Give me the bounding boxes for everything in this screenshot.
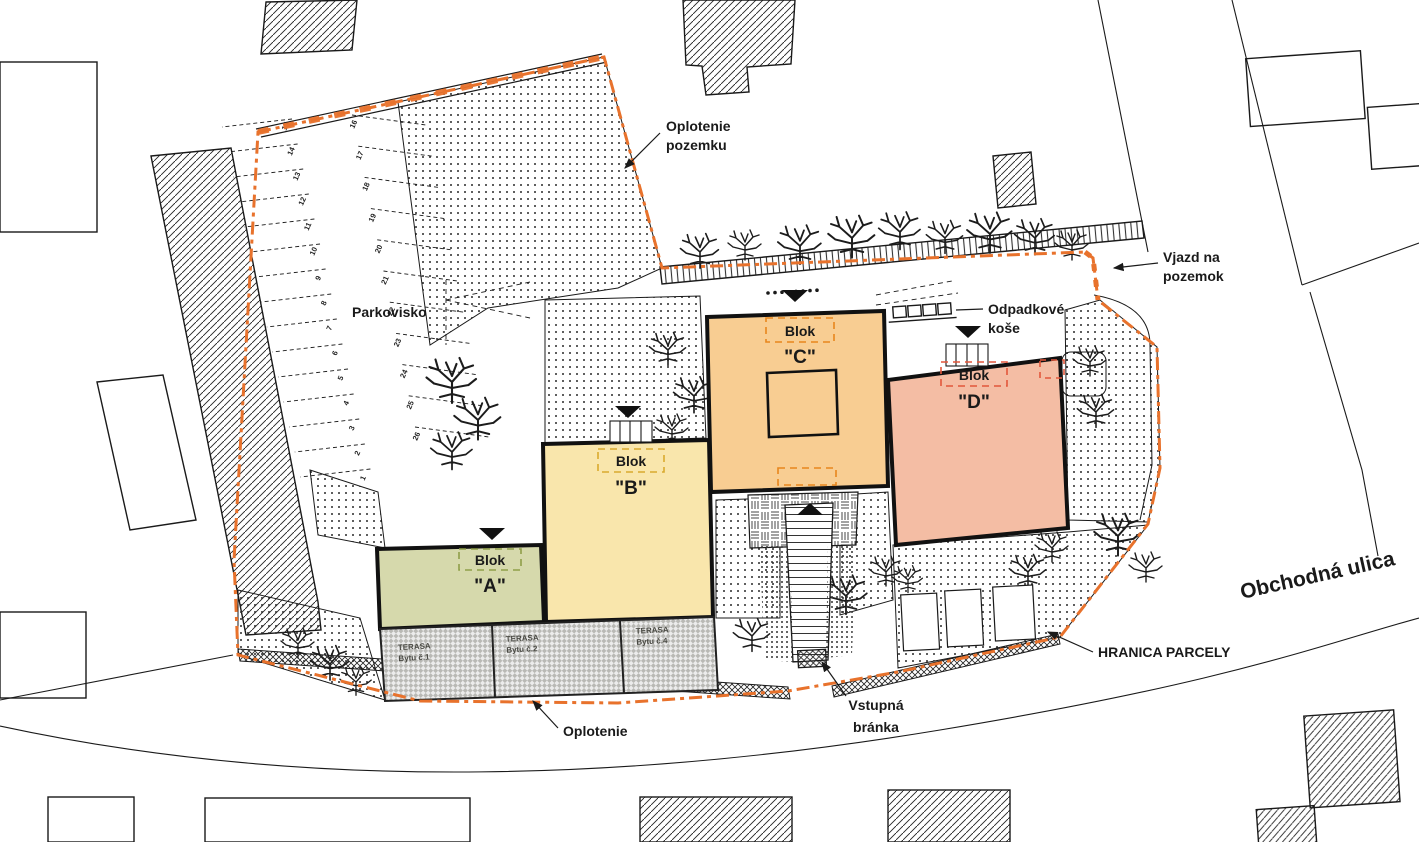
central-paving bbox=[748, 492, 858, 662]
tree-icon bbox=[431, 432, 472, 470]
parking-stall-number: 5 bbox=[336, 374, 346, 381]
block-b-name: "B" bbox=[615, 478, 647, 499]
parking-stall-number: 23 bbox=[392, 337, 404, 348]
parking-stall-number: 2 bbox=[352, 449, 362, 456]
entrance-arrow-a bbox=[479, 528, 505, 540]
oplotenie-pozemku-label2: pozemku bbox=[666, 137, 727, 153]
block-d-name: "D" bbox=[958, 392, 990, 413]
parking-stall-number: 25 bbox=[404, 399, 416, 410]
block-a bbox=[377, 545, 544, 629]
parking-stall-number: 24 bbox=[398, 367, 410, 379]
parking-stall-number: 26 bbox=[411, 431, 423, 442]
vjazd-label: Vjazd na bbox=[1163, 249, 1220, 265]
terrace-2-label: TERASA bbox=[505, 633, 539, 644]
parking-stall-number: 21 bbox=[379, 275, 391, 286]
parking-stall-number: 18 bbox=[360, 181, 372, 192]
parking-stall-number: 19 bbox=[367, 212, 379, 223]
tree-icon bbox=[427, 358, 477, 403]
odpadkove-label2: koše bbox=[988, 320, 1020, 336]
parking-stall-number: 8 bbox=[319, 299, 329, 306]
parking-stall-number: 7 bbox=[324, 324, 334, 331]
waste-bins bbox=[876, 281, 958, 322]
terrace-2-label2: Bytu č.2 bbox=[506, 644, 538, 655]
parking-stall-line bbox=[409, 396, 483, 406]
odpadkove-label: Odpadkové bbox=[988, 301, 1064, 317]
tree-icon bbox=[728, 230, 761, 260]
entry-gate bbox=[798, 649, 827, 667]
entrance-arrow-d bbox=[955, 326, 981, 338]
block-c-blok-label: Blok bbox=[785, 323, 816, 339]
block-c-name: "C" bbox=[784, 347, 816, 368]
obchodna-ulica-label: Obchodná ulica bbox=[1238, 547, 1397, 604]
parking-stall-number: 17 bbox=[354, 150, 366, 161]
site-plan-canvas: 151413121110987654321 161718192021222324… bbox=[0, 0, 1419, 842]
site-plan-svg: 151413121110987654321 161718192021222324… bbox=[0, 0, 1419, 842]
parking-stall-number: 9 bbox=[313, 274, 323, 281]
terrace-3-label: TERASA bbox=[635, 625, 669, 636]
tree-icon bbox=[454, 398, 500, 440]
block-b-blok-label: Blok bbox=[616, 453, 647, 469]
parking-stall-number: 3 bbox=[347, 424, 357, 431]
parking-stall-number: 20 bbox=[373, 243, 385, 254]
parking-stall-number: 6 bbox=[330, 349, 340, 356]
block-a-blok-label: Blok bbox=[475, 552, 506, 568]
parking-stall-number: 13 bbox=[291, 171, 303, 182]
vjazd-label2: pozemok bbox=[1163, 268, 1224, 284]
block-a-name: "A" bbox=[474, 576, 506, 597]
block-d bbox=[888, 358, 1068, 545]
oplotenie-pozemku-label: Oplotenie bbox=[666, 118, 731, 134]
terrace-1-label: TERASA bbox=[398, 641, 432, 652]
parking-stall-number: 14 bbox=[285, 145, 297, 157]
hranica-parcely-label: HRANICA PARCELY bbox=[1098, 644, 1231, 660]
terrace-3-label2: Bytu č.4 bbox=[636, 636, 668, 647]
parking-stall-number: 12 bbox=[296, 196, 308, 207]
parking-stall-number: 1 bbox=[358, 474, 368, 481]
oplotenie-label: Oplotenie bbox=[563, 723, 628, 739]
parking-stall-number: 10 bbox=[308, 246, 320, 257]
parking-stall-number: 4 bbox=[341, 399, 351, 407]
terraces: TERASA Bytu č.1 TERASA Bytu č.2 TERASA B… bbox=[380, 617, 718, 701]
vstupna-branka-label: Vstupná bbox=[848, 697, 903, 713]
block-d-blok-label: Blok bbox=[959, 367, 990, 383]
tree-icon bbox=[1129, 552, 1162, 582]
vstupna-branka-label2: bránka bbox=[853, 719, 899, 735]
parking-stall-line bbox=[402, 365, 476, 375]
parking-stall-number: 16 bbox=[348, 119, 360, 130]
parkovisko-label: Parkovisko bbox=[352, 304, 427, 320]
terrace-1-label2: Bytu č.1 bbox=[398, 652, 430, 663]
parking-stall-number: 11 bbox=[302, 221, 313, 232]
entrance-arrow-c bbox=[782, 290, 808, 302]
